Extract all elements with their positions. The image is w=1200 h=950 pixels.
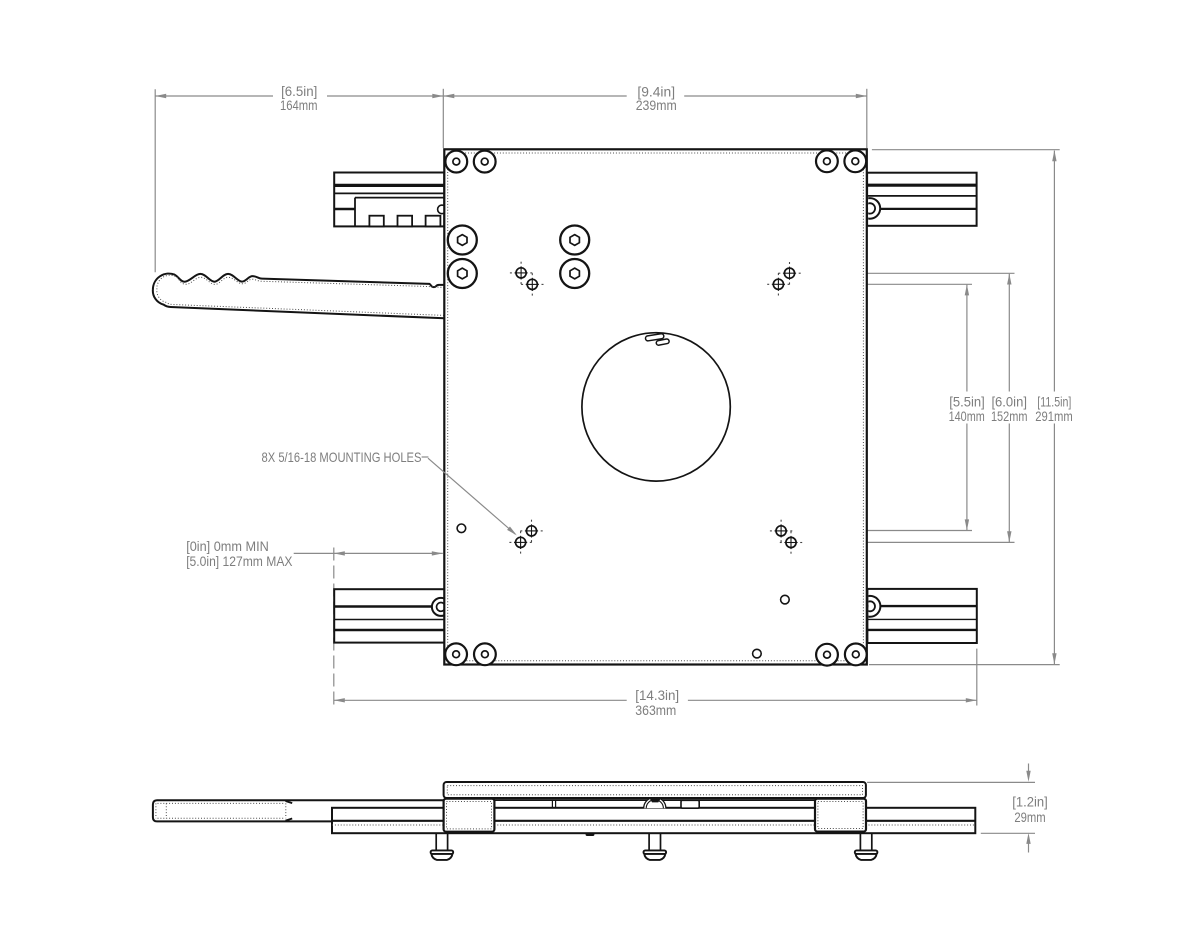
svg-text:[14.3in]: [14.3in] xyxy=(635,688,679,703)
svg-text:[6.0in]: [6.0in] xyxy=(991,395,1027,410)
svg-text:[11.5in]: [11.5in] xyxy=(1037,395,1071,410)
svg-text:239mm: 239mm xyxy=(636,98,677,113)
svg-text:[1.2in]: [1.2in] xyxy=(1012,794,1048,809)
svg-text:291mm: 291mm xyxy=(1035,409,1073,424)
svg-text:29mm: 29mm xyxy=(1014,810,1045,825)
svg-text:8X 5/16-18 MOUNTING HOLES: 8X 5/16-18 MOUNTING HOLES xyxy=(262,450,422,465)
svg-text:[6.5in]: [6.5in] xyxy=(281,84,317,99)
svg-text:363mm: 363mm xyxy=(635,703,676,718)
svg-text:[5.0in] 127mm MAX: [5.0in] 127mm MAX xyxy=(186,554,292,569)
svg-text:140mm: 140mm xyxy=(949,409,985,424)
svg-text:152mm: 152mm xyxy=(991,409,1028,424)
svg-text:[5.5in]: [5.5in] xyxy=(949,395,985,410)
svg-text:[0in] 0mm MIN: [0in] 0mm MIN xyxy=(186,539,269,554)
svg-text:164mm: 164mm xyxy=(280,98,318,113)
